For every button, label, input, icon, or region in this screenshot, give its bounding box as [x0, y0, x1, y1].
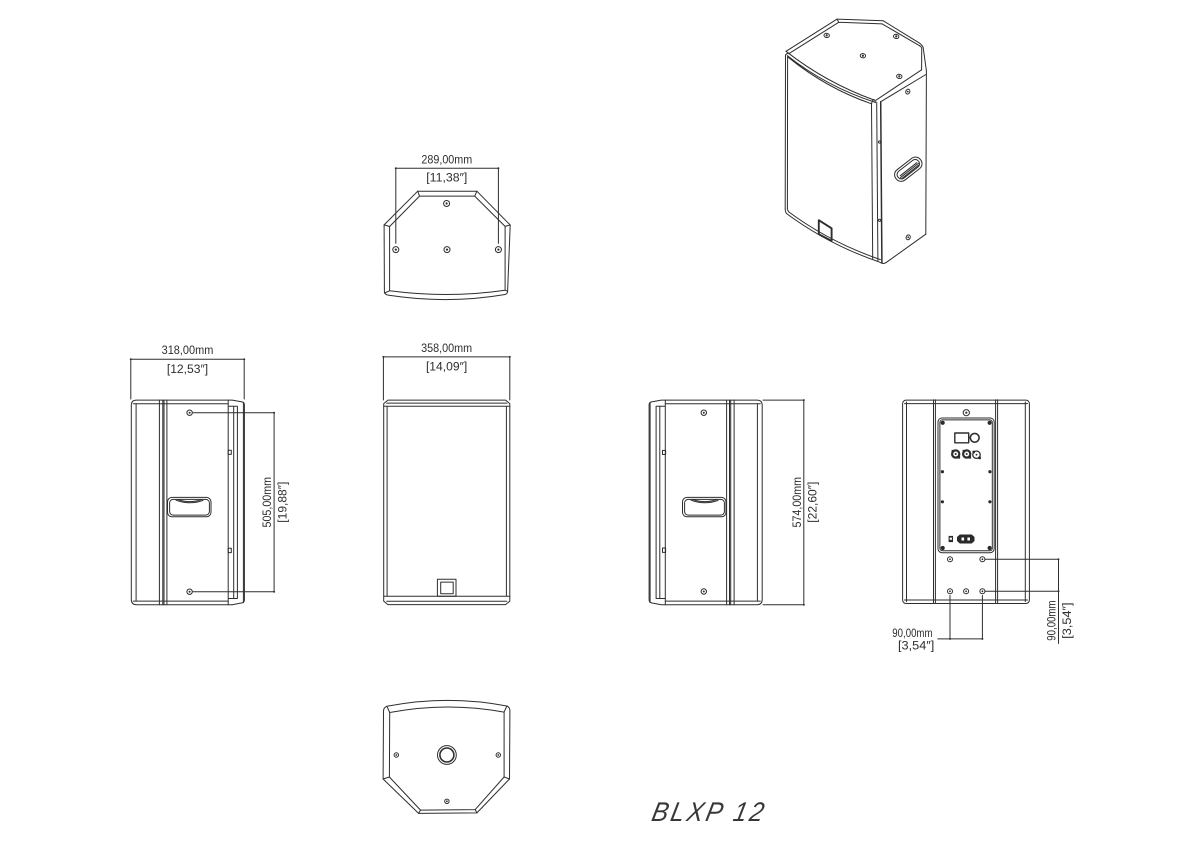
svg-text:[3,54″]: [3,54″]	[1060, 602, 1074, 638]
svg-text:90,00mm: 90,00mm	[1045, 601, 1059, 641]
svg-text:BLXP 12: BLXP 12	[649, 796, 770, 827]
svg-text:[3,54″]: [3,54″]	[898, 638, 934, 652]
svg-text:[19,88″]: [19,88″]	[276, 482, 290, 523]
svg-text:[12,53″]: [12,53″]	[167, 362, 208, 376]
svg-text:[22,60″]: [22,60″]	[805, 482, 819, 523]
svg-text:358,00mm: 358,00mm	[421, 341, 472, 355]
svg-text:505,00mm: 505,00mm	[260, 477, 274, 528]
svg-text:574,00mm: 574,00mm	[790, 477, 804, 528]
svg-text:[11,38″]: [11,38″]	[426, 170, 467, 184]
svg-text:318,00mm: 318,00mm	[162, 343, 214, 357]
svg-text:[14,09″]: [14,09″]	[426, 360, 467, 374]
svg-text:289,00mm: 289,00mm	[421, 152, 472, 166]
